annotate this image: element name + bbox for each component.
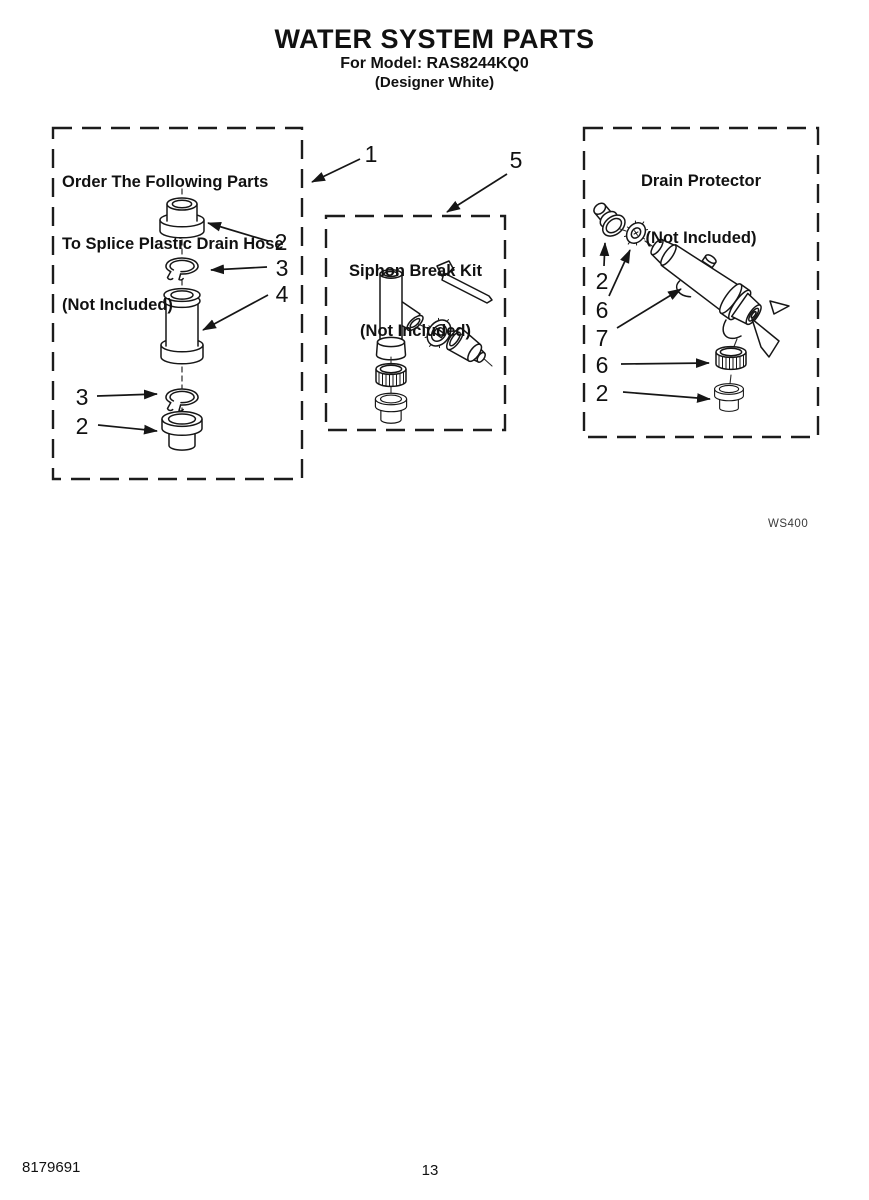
drain-callout-7: 7 [590, 325, 614, 352]
siphon-box-title: Siphon Break Kit (Not Included) [326, 221, 505, 381]
diagram-code: WS400 [768, 518, 808, 530]
splice-callout-2-top: 2 [269, 229, 293, 256]
page-title: WATER SYSTEM PARTS [0, 24, 869, 55]
drain-callout-2-bottom: 2 [590, 380, 614, 407]
page-number: 13 [410, 1162, 450, 1179]
splice-callout-4: 4 [270, 281, 294, 308]
finish-subtitle: (Designer White) [0, 74, 869, 91]
siphon-box-title-line2: (Not Included) [326, 321, 505, 341]
siphon-box-title-line1: Siphon Break Kit [326, 261, 505, 281]
drain-box-title: Drain Protector (Not Included) [584, 134, 818, 286]
splice-box-title-line1: Order The Following Parts [62, 172, 312, 193]
arrow-splice-3-bottom [97, 394, 157, 396]
model-subtitle: For Model: RAS8244KQ0 [0, 55, 869, 73]
arrow-drain-2-bottom [623, 392, 710, 399]
drain-box-title-line2: (Not Included) [584, 229, 818, 248]
drain-callout-6-top: 6 [590, 297, 614, 324]
arrow-callout-5 [447, 174, 507, 212]
drain-callout-2-top: 2 [590, 268, 614, 295]
splice-callout-3-bottom: 3 [70, 384, 94, 411]
drain-clamp-ring [716, 347, 746, 370]
drain-hose-coupler-bottom [715, 384, 744, 412]
drain-callout-6-bottom: 6 [590, 352, 614, 379]
catalog-page: WATER SYSTEM PARTS For Model: RAS8244KQ0… [0, 0, 869, 1200]
callout-5-label: 5 [504, 147, 528, 174]
arrow-callout-1 [312, 159, 360, 182]
arrow-splice-2-bottom [98, 425, 157, 431]
drain-box-title-line1: Drain Protector [584, 172, 818, 191]
splice-hose-coupler-bottom [162, 412, 202, 451]
arrow-drain-6-bottom [621, 363, 709, 364]
callout-1-label: 1 [359, 141, 383, 168]
siphon-hose-coupler [375, 393, 406, 423]
splice-callout-2-bottom: 2 [70, 413, 94, 440]
arrow-drain-7 [617, 289, 681, 328]
document-number: 8179691 [22, 1159, 80, 1176]
splice-callout-3-top: 3 [270, 255, 294, 282]
